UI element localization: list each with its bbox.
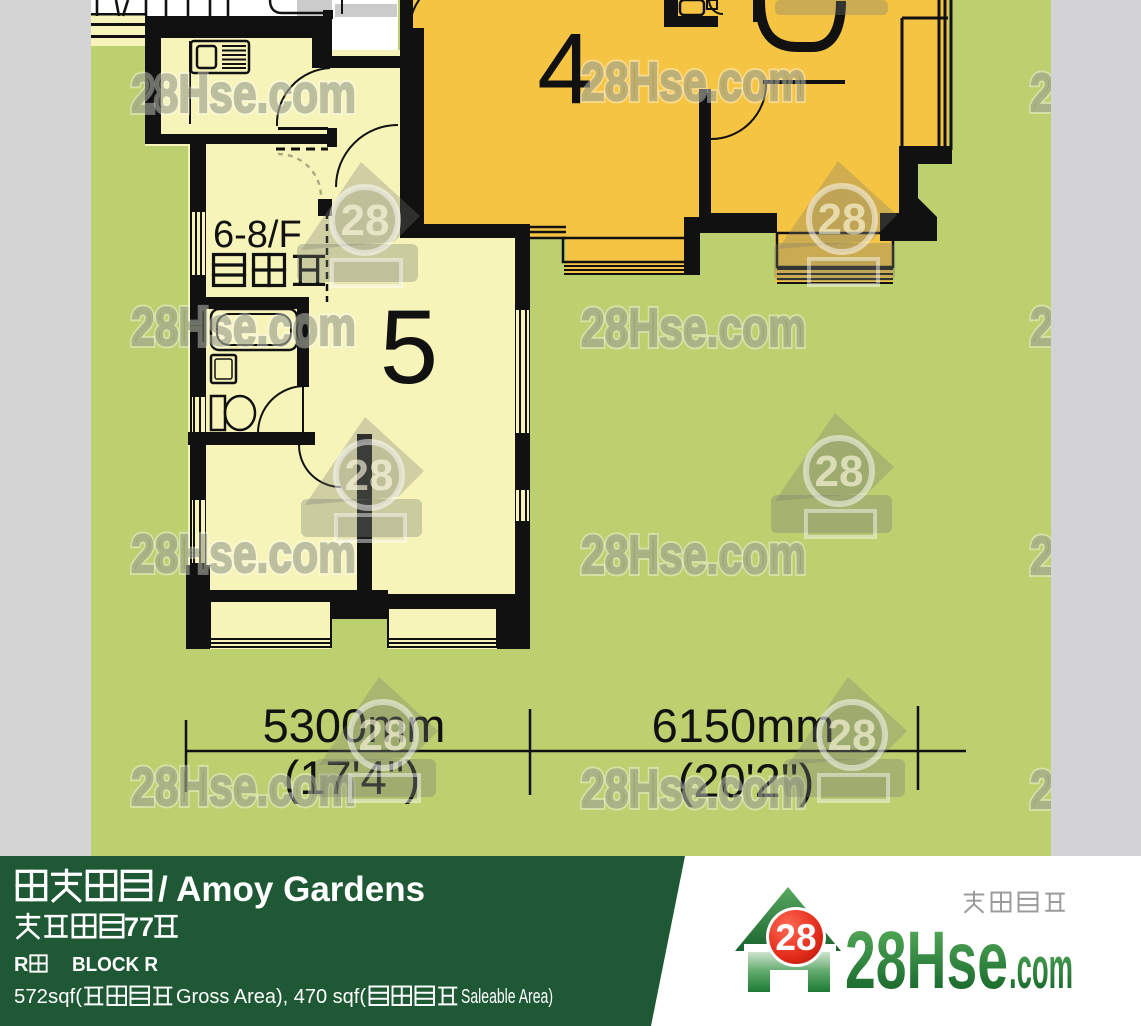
svg-text:28Hse: 28Hse bbox=[845, 915, 1008, 1006]
svg-text:28: 28 bbox=[775, 917, 816, 958]
svg-text:572sqf(: 572sqf( bbox=[14, 986, 82, 1008]
svg-text:/ Amoy Gardens: / Amoy Gardens bbox=[158, 870, 425, 909]
svg-text:Saleable Area): Saleable Area) bbox=[461, 986, 553, 1008]
svg-text:BLOCK R: BLOCK R bbox=[72, 954, 159, 976]
svg-text:77: 77 bbox=[124, 912, 154, 942]
svg-text:.com: .com bbox=[1009, 936, 1073, 1001]
svg-text:R: R bbox=[14, 954, 29, 976]
svg-text:6-8/F: 6-8/F bbox=[213, 214, 302, 256]
svg-text:5: 5 bbox=[380, 289, 438, 406]
svg-text:Gross Area), 470 sqf(: Gross Area), 470 sqf( bbox=[176, 986, 366, 1008]
